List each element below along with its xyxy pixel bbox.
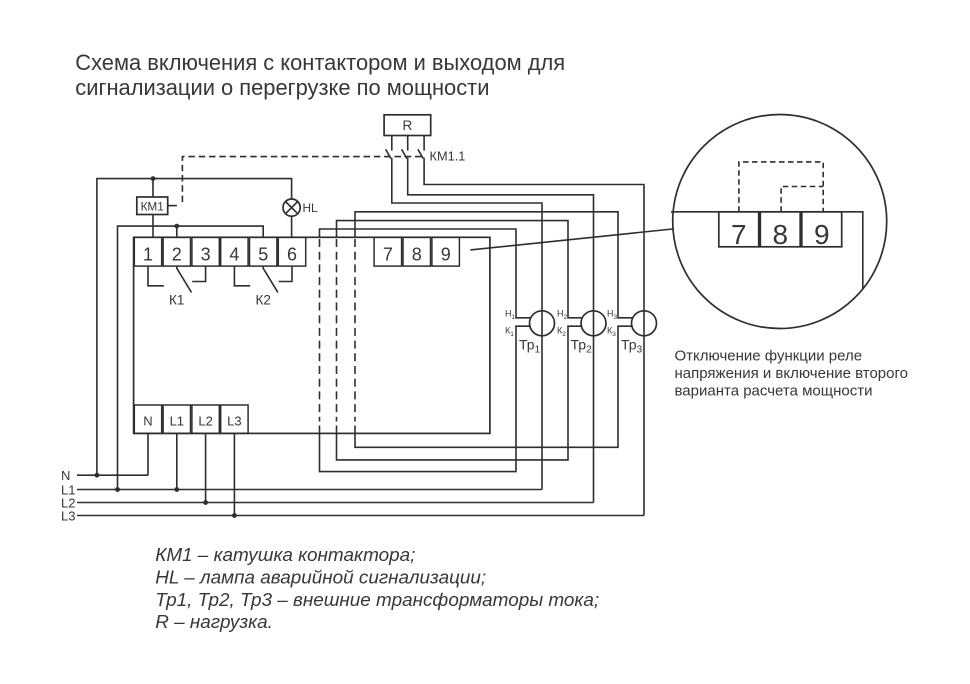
svg-text:К2: К2 [256,293,271,308]
svg-text:сигнализации о перегрузке по м: сигнализации о перегрузке по мощности [75,75,489,100]
svg-text:К1: К1 [169,293,184,308]
svg-text:7: 7 [383,244,393,264]
svg-text:Тр1: Тр1 [519,337,541,356]
svg-text:HL – лампа аварийной сигнализа: HL – лампа аварийной сигнализации; [155,567,486,588]
svg-text:КМ1 – катушка контактора;: КМ1 – катушка контактора; [155,545,415,566]
svg-text:КМ1: КМ1 [141,200,164,214]
svg-text:9: 9 [441,244,451,264]
svg-text:3: 3 [201,244,211,264]
svg-text:К1: К1 [505,326,514,339]
svg-text:варианта расчета мощности: варианта расчета мощности [675,382,873,399]
svg-text:8: 8 [773,219,789,250]
svg-text:2: 2 [172,244,182,264]
svg-text:H3: H3 [607,309,618,322]
svg-text:HL: HL [303,201,319,215]
svg-text:L3: L3 [227,414,241,429]
svg-text:Тр2: Тр2 [571,337,593,356]
svg-text:N: N [143,414,152,429]
svg-text:8: 8 [412,244,422,264]
svg-text:Тр1, Тр2, Тр3 – внешние трансф: Тр1, Тр2, Тр3 – внешние трансформаторы т… [155,590,599,611]
svg-text:Схема включения с контактором: Схема включения с контактором и выходом … [75,50,565,75]
svg-text:КМ1.1: КМ1.1 [430,149,466,164]
svg-text:L3: L3 [61,508,75,523]
svg-text:L1: L1 [170,414,184,429]
svg-text:L2: L2 [198,414,212,429]
svg-text:H2: H2 [557,309,568,322]
svg-text:N: N [61,468,70,483]
svg-text:9: 9 [814,219,830,250]
svg-text:1: 1 [143,244,153,264]
svg-text:7: 7 [731,219,747,250]
svg-text:Отключение функции реле: Отключение функции реле [675,348,863,365]
svg-text:H1: H1 [505,309,516,322]
svg-text:R – нагрузка.: R – нагрузка. [155,612,273,633]
svg-text:5: 5 [258,244,268,264]
svg-text:К3: К3 [607,326,616,339]
svg-text:6: 6 [287,244,297,264]
svg-text:4: 4 [229,244,239,264]
svg-text:К2: К2 [557,326,566,339]
svg-text:Тр3: Тр3 [621,337,643,356]
svg-text:R: R [403,118,413,133]
svg-text:напряжения и включение второго: напряжения и включение второго [675,365,908,382]
